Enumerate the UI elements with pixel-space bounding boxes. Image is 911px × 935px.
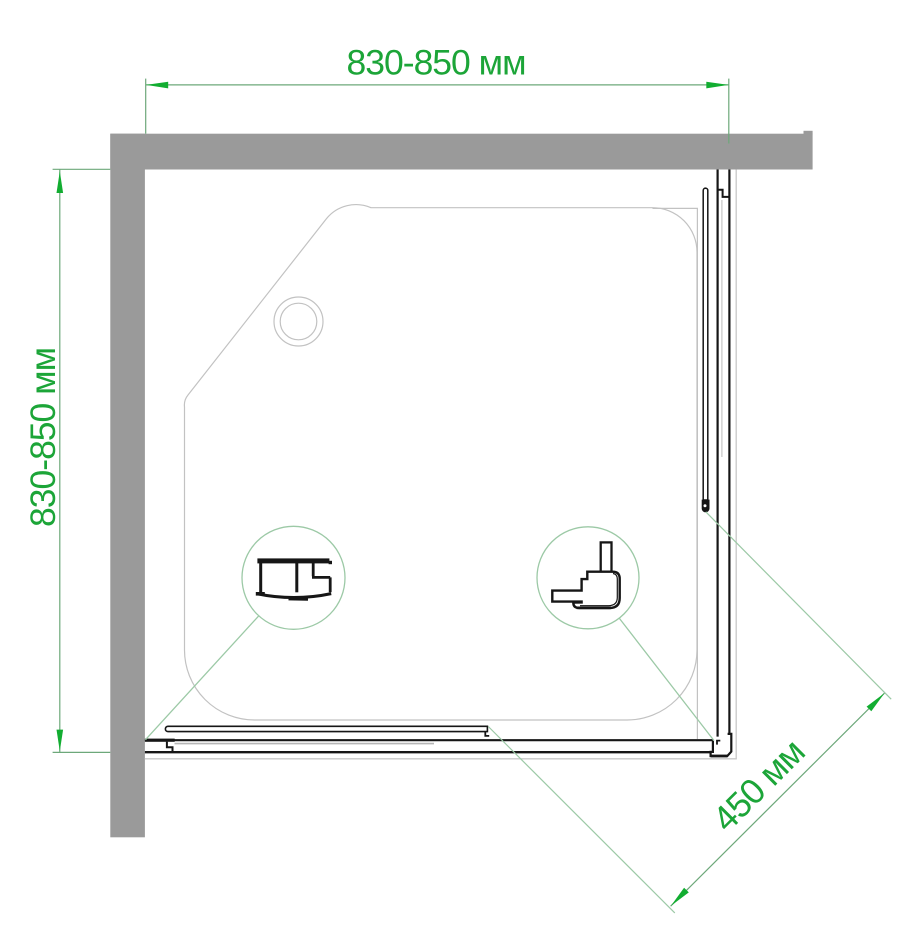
svg-text:450 мм: 450 мм bbox=[705, 732, 812, 839]
svg-text:830-850 мм: 830-850 мм bbox=[23, 348, 63, 527]
svg-text:830-850 мм: 830-850 мм bbox=[347, 43, 526, 83]
